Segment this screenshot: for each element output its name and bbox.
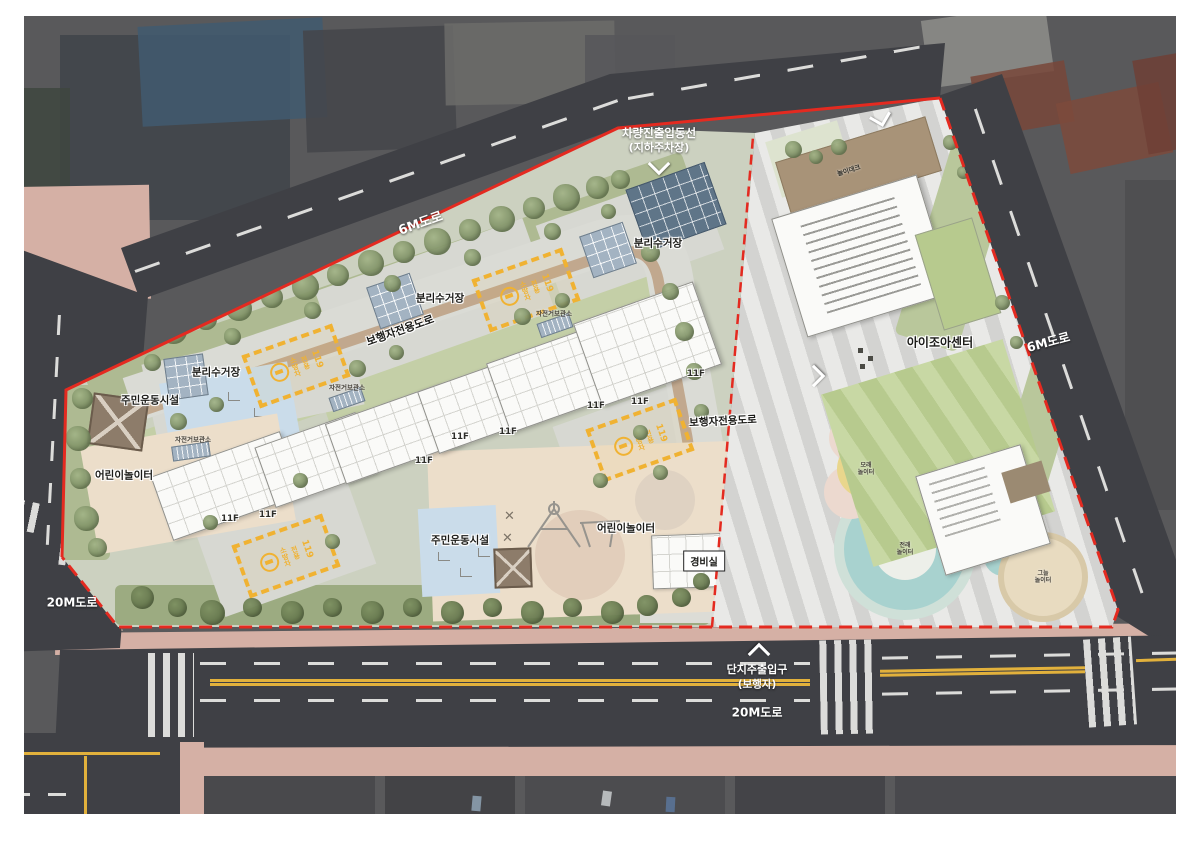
lane-dash-bottom-1 [200,662,810,665]
tree-icon [555,293,570,308]
tree-icon [209,397,224,412]
tree-icon [611,170,630,189]
tree-icon [521,601,544,624]
tree-icon [459,219,481,241]
aerial-building [666,797,676,812]
aerial-building [138,17,328,127]
tree-icon [514,308,531,325]
tree-icon [384,275,401,292]
sidewalk-side-street [180,742,204,814]
tree-icon [74,506,99,531]
tree-icon [393,241,415,263]
tree-icon [694,404,709,419]
tree-icon [662,283,679,300]
tree-icon [523,197,545,219]
tree-icon [358,250,384,276]
side-street-yellow-h [24,752,160,755]
tree-icon [168,598,187,617]
side-street [24,733,182,814]
lane-dash-bottom-2 [200,699,810,702]
site-plan-canvas: ✕ ✕ 소방차 전용 119 소방차 전용 119 [24,16,1176,814]
tree-icon [641,243,660,262]
tree-icon [553,184,580,211]
tree-icon [325,534,340,549]
tree-icon [66,426,91,451]
aerial-viewport: ✕ ✕ 소방차 전용 119 소방차 전용 119 [24,16,1176,814]
crosswalk-right [1083,636,1137,727]
tree-icon [224,328,241,345]
tree-icon [203,515,218,530]
aerial-building [303,25,457,152]
tree-icon [601,601,624,624]
tree-icon [441,601,464,624]
tree-icon [72,388,93,409]
tree-icon [200,600,225,625]
tree-icon [633,425,648,440]
tree-icon [593,473,608,488]
side-street-dash [24,793,84,796]
tree-icon [831,139,847,155]
tree-icon [483,598,502,617]
tree-icon [464,249,481,266]
tree-icon [995,295,1010,310]
tree-icon [144,354,161,371]
tree-icon [809,150,823,164]
tree-icon [361,601,384,624]
tree-icon [349,360,366,377]
tree-icon [403,598,422,617]
tree-icon [293,473,308,488]
crosswalk-left [148,653,194,737]
tree-icon [563,598,582,617]
tree-icon [424,228,451,255]
crosswalk-center [819,640,875,735]
site-plan-sheet: ✕ ✕ 소방차 전용 119 소방차 전용 119 [0,0,1200,848]
tree-icon [693,573,710,590]
tree-icon [601,204,616,219]
tree-icon [672,588,691,607]
center-line-yellow-1 [210,679,810,682]
center-line-yellow-2 [210,683,810,686]
tree-icon [389,345,404,360]
tree-icon [281,601,304,624]
tree-icon [675,322,694,341]
tree-icon [686,363,703,380]
tree-icon [1010,336,1023,349]
tree-icon [70,468,91,489]
tree-icon [653,465,668,480]
tree-icon [243,598,262,617]
tree-icon [170,413,187,430]
tree-icon [131,586,154,609]
tree-icon [327,264,349,286]
tree-icon [304,302,321,319]
tree-icon [323,598,342,617]
tree-icon [489,206,515,232]
side-street-yellow-v [84,756,87,814]
tree-icon [88,538,107,557]
tree-icon [785,141,802,158]
tree-icon [586,176,609,199]
tree-icon [544,223,561,240]
tree-icon [637,595,658,616]
aerial-building [471,796,481,812]
